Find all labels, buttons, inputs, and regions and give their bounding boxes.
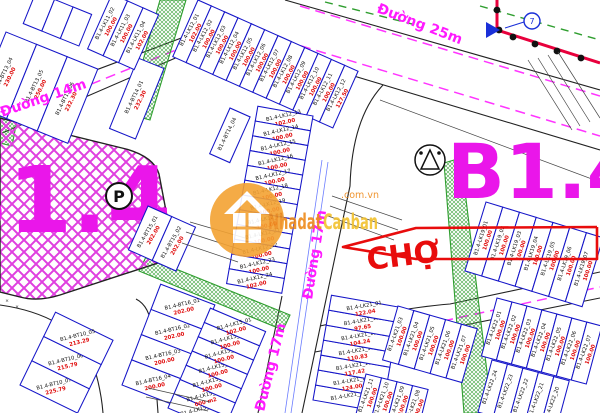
zone-label-right: B1.4: [447, 127, 600, 216]
road-label-25m: Đường 25m: [375, 1, 465, 48]
fence-mark: ×: [15, 304, 19, 310]
watermark-brand-left: Nhadat: [268, 210, 322, 234]
node-7-label: 7: [529, 17, 534, 26]
parking-icon-label: P: [113, 187, 125, 206]
plot-strip: B1.4-LK21_11100.00B1.4-LK21_10100.00B1.4…: [356, 374, 430, 413]
fence-mark: ×: [5, 298, 9, 304]
transformer-symbol: [415, 145, 445, 175]
watermark-brand-right: Canban: [323, 210, 378, 234]
plot-strip: B1.4-BT14_04: [210, 108, 250, 163]
market-label: CHỢ: [365, 234, 442, 278]
map-canvas: × × B1.4 P B1.4-BT13_04230.00B1.4-BT13_0…: [0, 0, 600, 413]
plot-strip: B1.4-BT10_07225.79B1.4-BT10_06215.79B1.4…: [18, 310, 114, 413]
power-line: 7: [486, 0, 600, 63]
plot-strip: [23, 0, 91, 46]
watermark-domain: .com.vn: [341, 190, 379, 201]
cadastral-map: × × B1.4 P B1.4-BT13_04230.00B1.4-BT13_0…: [0, 0, 600, 413]
plot-strip: B1.4-LK19_01100.00B1.4-LK19_02100.00B1.4…: [465, 202, 600, 307]
